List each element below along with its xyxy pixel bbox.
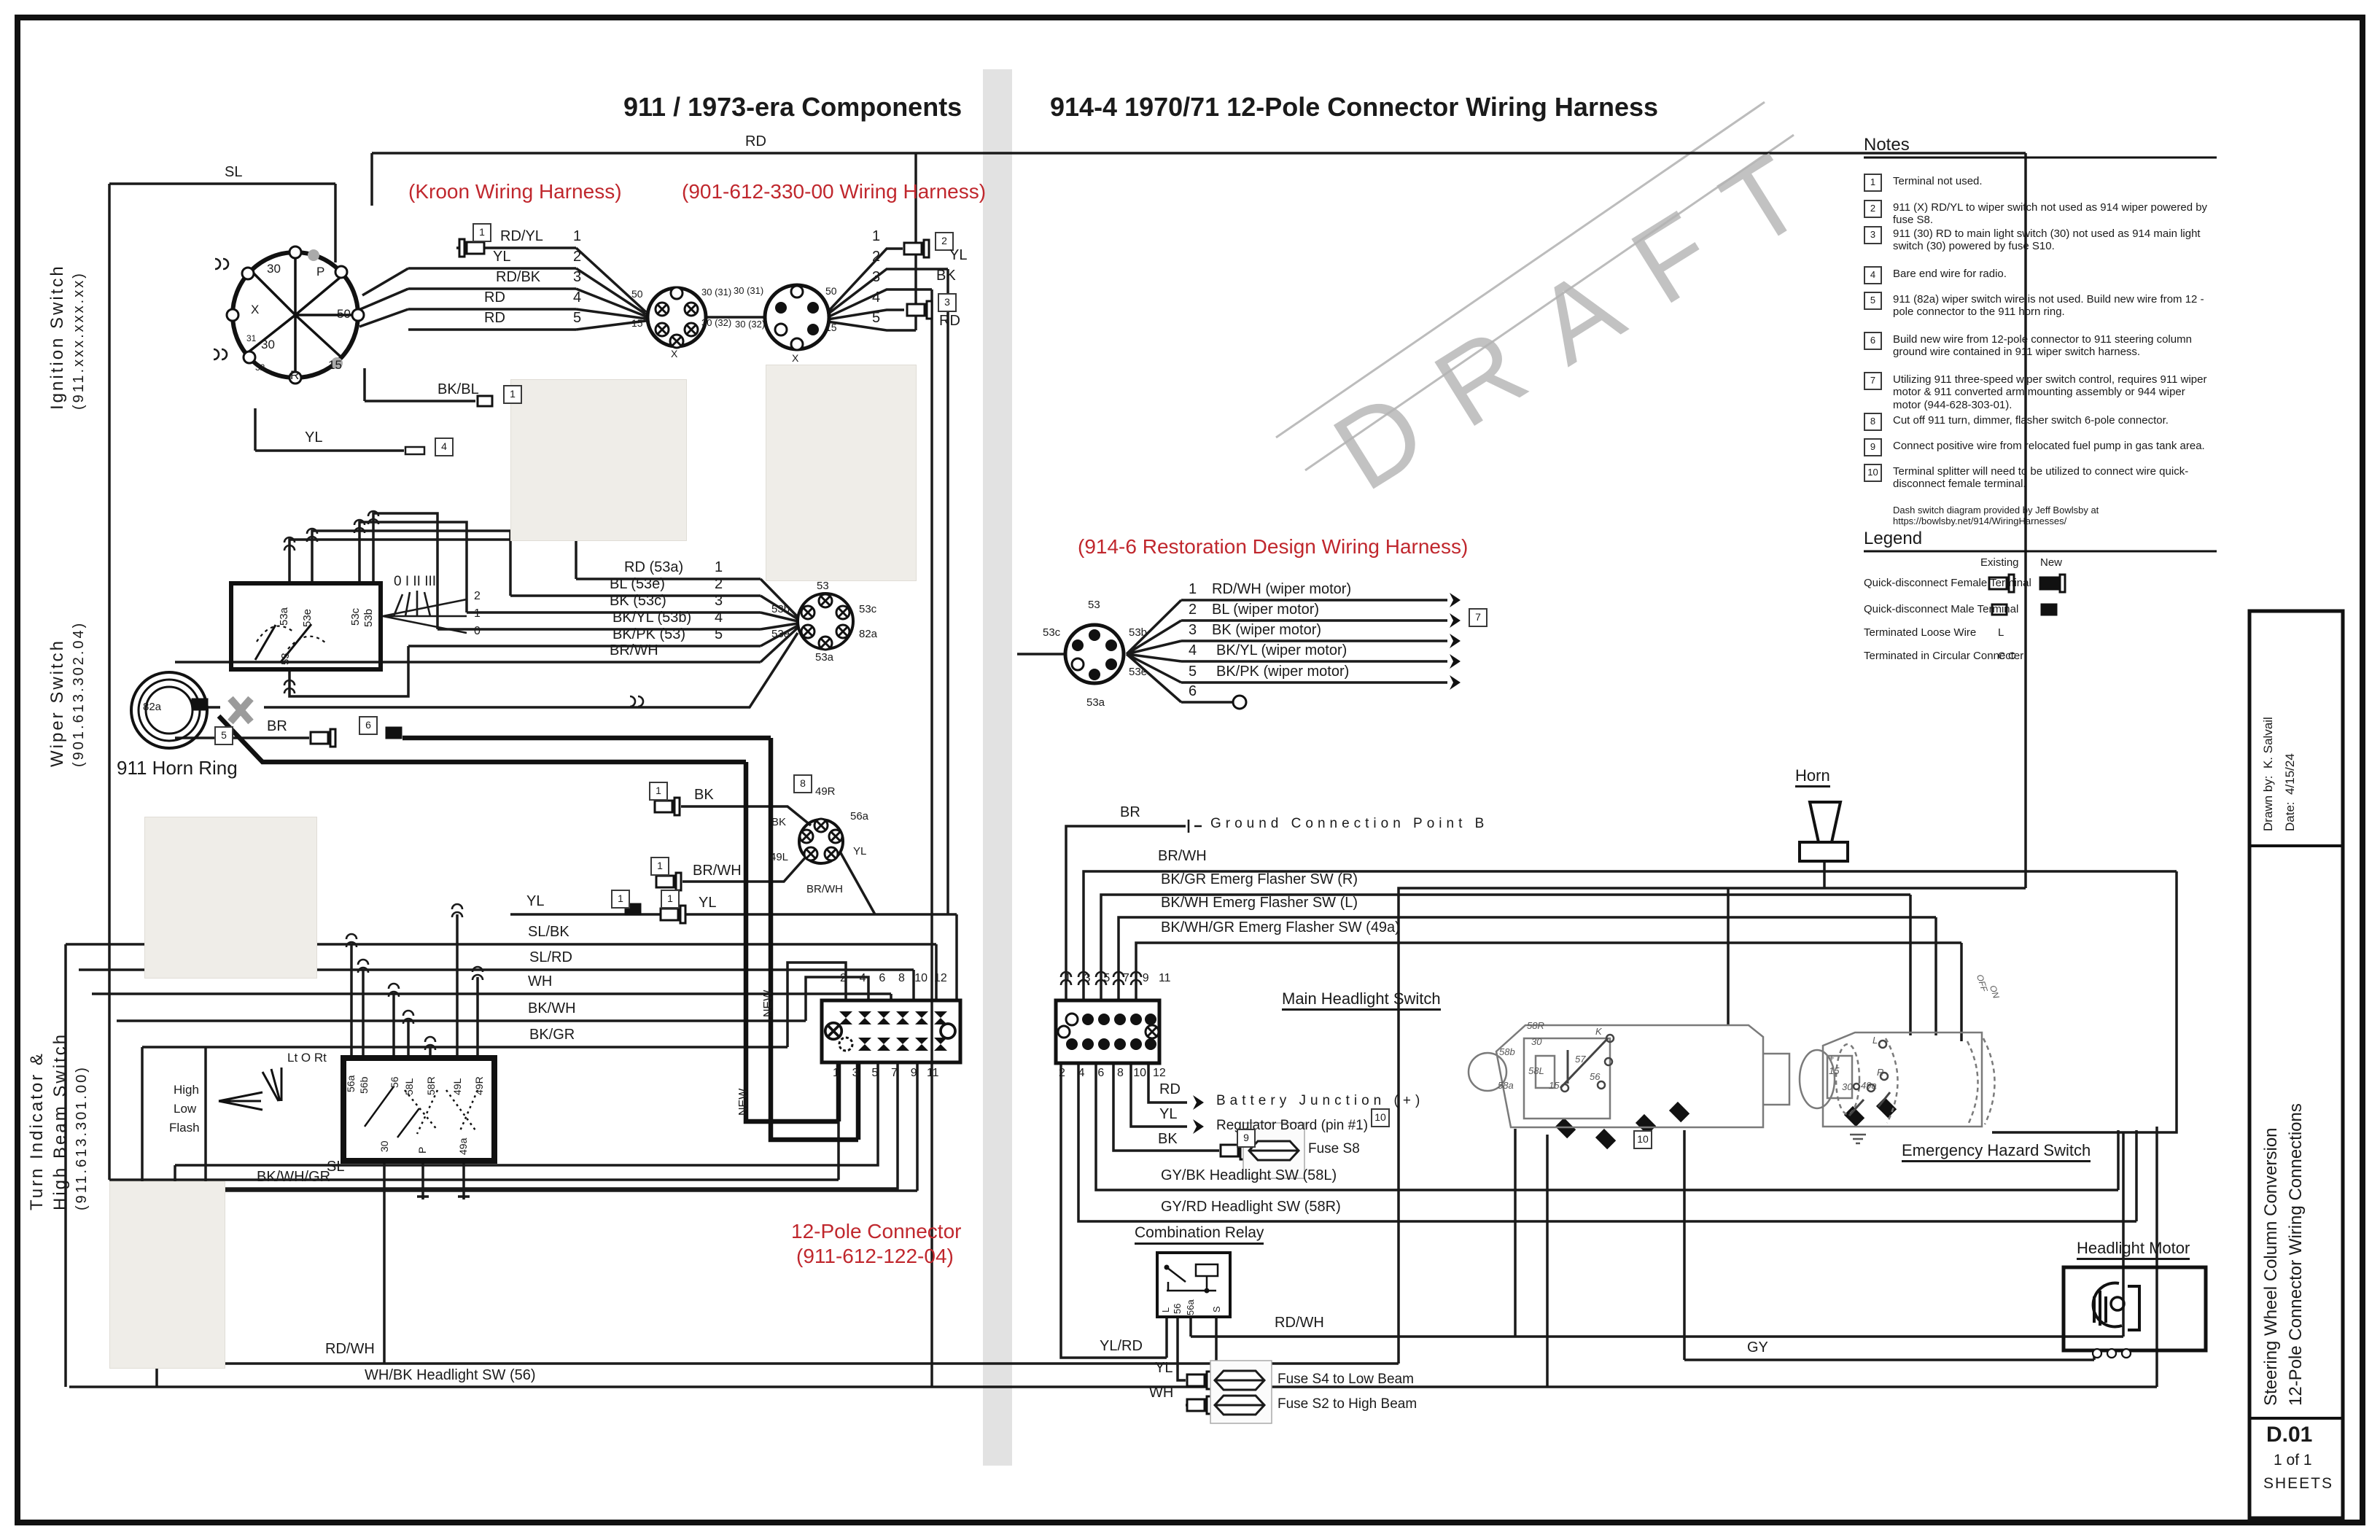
wpin-3: 3 (715, 594, 723, 609)
ignition-section-part: (911.xxx.xxx.xx) (71, 271, 87, 410)
photo-kroon-harness (510, 379, 687, 541)
motor-title: Headlight Motor (2077, 1240, 2190, 1260)
photo-connector-pigtails (766, 365, 917, 581)
six-pin-connector-kroon (798, 594, 853, 650)
bus-wh: WH (528, 974, 552, 989)
conn-b-50: 50 (825, 286, 837, 297)
note-num-6: 6 (1864, 332, 1882, 350)
turn-high: High (174, 1084, 199, 1097)
wiper-53: 53 (280, 653, 292, 665)
wpin-2: 2 (715, 577, 723, 592)
note-num-5: 5 (1864, 292, 1882, 310)
six-pole-turn-connector (799, 819, 843, 863)
r6-53a: 53a (1086, 697, 1105, 709)
bus-bkgr: BK/GR (529, 1027, 575, 1043)
sixpole-49r: 49R (815, 786, 836, 798)
pos-1: 1 (474, 608, 481, 621)
wire-whbk: WH/BK Headlight SW (56) (365, 1368, 536, 1383)
wiring-diagram-page: 911 / 1973-era Components 914-4 1970/71 … (0, 0, 2380, 1540)
wire-br: BR (267, 719, 287, 734)
wiper-53a: 53a (279, 607, 290, 626)
note-ref-7: 7 (1469, 608, 1487, 627)
battery-junction: Battery Junction (+) (1216, 1094, 1424, 1108)
turn-49a: 49a (458, 1138, 469, 1155)
conn-a-15: 15 (631, 318, 643, 329)
horn-title: Horn (1795, 767, 1830, 787)
note-ref-3: 3 (938, 293, 957, 312)
note-ref-10a: 10 (1371, 1108, 1390, 1127)
wm-wire2: BL (wiper motor) (1212, 602, 1319, 618)
wire-yl-right: YL (949, 248, 967, 263)
wire-gybk: GY/BK Headlight SW (58L) (1161, 1168, 1337, 1183)
new-label-1: NEW (738, 1089, 750, 1116)
conn-a-3032: 30 (32) (701, 318, 731, 328)
left-panel-title: 911 / 1973-era Components (623, 93, 962, 121)
sixpole-brwh: BR/WH (806, 884, 843, 895)
turn-section-label-2: High Beam Switch (51, 1032, 69, 1210)
pin-5: 5 (573, 311, 581, 326)
hornring-82a: 82a (143, 701, 161, 713)
wire-wh-s2: WH (1149, 1385, 1173, 1401)
wire-network (66, 153, 2177, 1405)
horn-ring-title: 911 Horn Ring (117, 758, 238, 778)
kroon6-53a: 53a (815, 652, 833, 664)
term-p: P (316, 265, 324, 279)
relay-56a: 56a (1186, 1299, 1196, 1315)
note-ref-6: 6 (359, 716, 378, 735)
wpin-4: 4 (715, 610, 723, 626)
mhs-30: 30 (1531, 1037, 1541, 1047)
kroon6-53e: 53e (771, 629, 790, 640)
fuse-s8: Fuse S8 (1308, 1142, 1360, 1156)
kroon6-53c: 53c (859, 604, 876, 615)
kroon6-82a: 82a (859, 629, 877, 640)
pin-2: 2 (573, 249, 581, 265)
wire-brwh-wiper: BR/WH (610, 643, 658, 658)
wire-bk53c: BK (53c) (610, 594, 666, 609)
note-text-10: Terminal splitter will need to be utiliz… (1893, 465, 2214, 491)
mhs-57: 57 (1575, 1054, 1585, 1065)
turn-56b: 56b (359, 1077, 370, 1094)
note-ref-1b: 1 (503, 385, 522, 404)
note-text-1: Terminal not used. (1893, 175, 2214, 187)
pos-2: 2 (474, 591, 481, 603)
bus-bkwh: BK/WH (528, 1001, 576, 1016)
wire-sl: SL (225, 165, 242, 180)
note-text-3: 911 (30) RD to main light switch (30) no… (1893, 227, 2214, 253)
hz-plus: + (1829, 1053, 1835, 1063)
pin-r2: 2 (872, 249, 880, 265)
bus-yl: YL (526, 894, 544, 909)
note-text-2: 911 (X) RD/YL to wiper switch not used a… (1893, 201, 2214, 227)
tb-title-2: 12-Pole Connector Wiring Connections (2287, 1103, 2305, 1406)
legend-row-1: Quick-disconnect Female Terminal (1864, 577, 2031, 589)
wm-wire3: BK (wiper motor) (1212, 623, 1321, 638)
wire-ylrd: YL/RD (1100, 1339, 1143, 1354)
mhs-58b: 58b (1499, 1047, 1515, 1057)
conn-b-3031: 30 (31) (734, 286, 763, 296)
mhs-58l: 58L (1528, 1066, 1544, 1076)
wire-rdbk: RD/BK (496, 270, 540, 285)
turn-section-part: (911.613.301.00) (74, 1065, 90, 1210)
wm-pin6: 6 (1189, 684, 1197, 699)
pin-r3: 3 (872, 270, 880, 285)
legend-sym-cc: C C (1998, 650, 2015, 661)
panel-divider (983, 69, 1012, 1466)
hz-r: R (1877, 1067, 1883, 1078)
wire-rd-4: RD (484, 290, 505, 306)
note-num-7: 7 (1864, 372, 1882, 390)
legend-row-2: Quick-disconnect Male Terminal (1864, 604, 2018, 615)
note-text-9: Connect positive wire from relocated fue… (1893, 440, 2214, 452)
note-ref-4: 4 (435, 437, 454, 456)
conn-a-x: X (671, 349, 677, 359)
note-ref-5: 5 (214, 726, 233, 745)
wire-bkyl53b: BK/YL (53b) (612, 610, 691, 626)
term-50: 50 (337, 308, 351, 321)
relay-l: L (1161, 1307, 1171, 1312)
wire-bk-trio: BK (694, 787, 714, 803)
wpin-1: 1 (715, 560, 723, 575)
wire-bkgr-ef: BK/GR Emerg Flasher SW (R) (1161, 872, 1358, 887)
note-text-6: Build new wire from 12-pole connector to… (1893, 333, 2214, 359)
legend-existing: Existing (1980, 557, 2019, 569)
r6-53c: 53c (1043, 627, 1060, 639)
wiper-53c: 53c (350, 608, 362, 626)
right-panel-title: 914-4 1970/71 12-Pole Connector Wiring H… (1050, 93, 1658, 121)
ground-point-b: Ground Connection Point B (1210, 817, 1488, 831)
turn-58l: 58L (404, 1078, 415, 1095)
wiper-53b: 53b (363, 609, 375, 627)
wm-pin2: 2 (1189, 602, 1197, 618)
wire-yl-radio: YL (305, 430, 322, 446)
r6-53: 53 (1088, 599, 1100, 611)
note-num-4: 4 (1864, 266, 1882, 284)
mhs-k: K (1595, 1027, 1602, 1037)
quick-disconnects (192, 239, 1895, 1414)
fuse-s2: Fuse S2 to High Beam (1277, 1397, 1417, 1412)
relay-title: Combination Relay (1135, 1225, 1264, 1245)
note-text-7: Utilizing 911 three-speed wiper switch c… (1893, 373, 2214, 411)
pos-0: 0 (474, 626, 481, 638)
term-30: 30 (267, 262, 281, 276)
wire-rd-batt: RD (1159, 1082, 1181, 1097)
r6-53b: 53b (1129, 627, 1147, 639)
tb-date: Date: 4/15/24 (2284, 753, 2297, 831)
note-ref-8: 8 (793, 774, 812, 793)
h914-harness-label: (914-6 Restoration Design Wiring Harness… (1078, 536, 1468, 557)
mhs-title: Main Headlight Switch (1282, 990, 1441, 1011)
wire-brwh-right: BR/WH (1158, 849, 1207, 864)
wire-bl53e: BL (53e) (610, 577, 665, 592)
conn-b-x: X (792, 353, 798, 364)
note-ref-10b: 10 (1633, 1130, 1652, 1149)
twelve-pole-label-2: (911-612-122-04) (796, 1245, 954, 1267)
hz-15: 15 (1829, 1066, 1839, 1076)
mhs-58r: 58R (1527, 1021, 1544, 1031)
hz-30: 30 (1842, 1082, 1852, 1092)
note-ref-1e: 1 (611, 890, 630, 909)
note-num-3: 3 (1864, 226, 1882, 244)
ignition-section-label: Ignition Switch (48, 264, 66, 410)
hz-l: L (1872, 1035, 1878, 1046)
tb-drawn-by: Drawn by: K. Salvail (2262, 717, 2275, 831)
horn-symbol (1800, 802, 1848, 861)
r6-53e: 53e (1129, 666, 1147, 678)
wiper-positions: 0 I II III (394, 575, 436, 589)
pin-4: 4 (573, 290, 581, 306)
relay-56: 56 (1172, 1304, 1183, 1314)
wiper-section-label: Wiper Switch (48, 639, 66, 767)
note-text-8: Cut off 911 turn, dimmer, flasher switch… (1893, 414, 2214, 427)
pin-r4: 4 (872, 290, 880, 306)
wire-rd53a: RD (53a) (624, 560, 683, 575)
term-31: 31 (246, 334, 256, 343)
term-30b: 30 (261, 338, 275, 351)
fuse-s4: Fuse S4 to Low Beam (1277, 1372, 1414, 1387)
wire-bkbl: BK/BL (437, 382, 479, 397)
turn-49r: 49R (474, 1076, 485, 1095)
wm-pin1: 1 (1189, 582, 1197, 597)
kroon6-53: 53 (817, 580, 829, 592)
pin-r1: 1 (872, 229, 880, 244)
lp12-odds: 1 3 5 7 9 11 (833, 1067, 939, 1080)
turn-low: Low (174, 1102, 196, 1116)
wm-pin3: 3 (1189, 623, 1197, 638)
relay-s: S (1212, 1306, 1222, 1312)
note-ref-1f: 1 (661, 890, 680, 909)
term-15: 15 (328, 359, 342, 372)
note-ref-1c: 1 (649, 782, 668, 801)
note-ref-9: 9 (1237, 1129, 1256, 1148)
mhs-58a: 58a (1498, 1081, 1514, 1091)
tb-sheets: SHEETS (2263, 1476, 2333, 1492)
turn-56a: 56a (346, 1076, 357, 1092)
lp12-evens: 2 4 6 8 10 12 (840, 973, 947, 985)
wire-bkwh-ef: BK/WH Emerg Flasher SW (L) (1161, 895, 1358, 911)
rp12-odds: 1 3 5 7 9 11 (1065, 973, 1171, 985)
wire-rd-top: RD (745, 134, 766, 149)
photo-turn-switch-harness (144, 817, 317, 979)
kroon-harness-label: (Kroon Wiring Harness) (408, 181, 622, 202)
hz-49a: 49a (1861, 1081, 1877, 1091)
pin-r5: 5 (872, 311, 880, 326)
turn-p: P (417, 1147, 428, 1154)
turn-section-label-1: Turn Indicator & (28, 1051, 46, 1210)
wire-rd-right: RD (939, 314, 960, 329)
wire-bkwhgr: BK/WH/GR (257, 1170, 330, 1185)
legend-new: New (2040, 557, 2062, 569)
wire-bkpk53: BK/PK (53) (612, 627, 685, 642)
pin-3: 3 (573, 270, 581, 285)
legend-row-3: Terminated Loose Wire (1864, 627, 1976, 639)
mhs-56: 56 (1590, 1072, 1600, 1082)
rp12-evens: 2 4 6 8 10 12 (1059, 1067, 1166, 1080)
turn-56: 56 (389, 1076, 400, 1088)
note-num-9: 9 (1864, 438, 1882, 456)
headlight-motor-symbol (2064, 1267, 2206, 1358)
turn-lt-o-rt: Lt O Rt (287, 1051, 327, 1065)
mhs-15: 15 (1549, 1081, 1559, 1091)
h901-harness-label: (901-612-330-00 Wiring Harness) (682, 181, 986, 202)
new-label-2: NEW (763, 990, 775, 1017)
sixpole-49l: 49L (770, 852, 788, 863)
twelve-pole-left (822, 1000, 960, 1062)
wire-bk-fuse: BK (1158, 1132, 1178, 1147)
legend-sym-l: L (1998, 627, 2004, 639)
sixpole-bk: BK (771, 817, 786, 828)
wm-wire5: BK/PK (wiper motor) (1216, 664, 1349, 680)
kroon6-53b: 53b (771, 604, 790, 615)
wire-bkwhgr-ef: BK/WH/GR Emerg Flasher SW (49a) (1161, 920, 1400, 936)
wpin-5: 5 (715, 627, 723, 642)
term-r: R (290, 369, 299, 382)
wm-pin5: 5 (1189, 664, 1197, 680)
wire-rdyl: RD/YL (500, 229, 543, 244)
wire-rdwh-relay: RD/WH (1275, 1315, 1324, 1331)
bus-slbk: SL/BK (528, 925, 569, 940)
note-ref-1d: 1 (650, 857, 669, 876)
conn-a-50: 50 (631, 289, 643, 300)
note-num-1: 1 (1864, 174, 1882, 192)
conn-a-3031: 30 (31) (701, 287, 731, 297)
wire-bk-right: BK (936, 268, 956, 284)
wire-brwh-trio: BR/WH (693, 863, 742, 879)
wire-yl-2: YL (493, 249, 510, 265)
conn-b-15: 15 (825, 322, 837, 333)
wire-yl-s4: YL (1155, 1361, 1172, 1376)
note-num-8: 8 (1864, 413, 1882, 431)
wiper-section-part: (901.613.302.04) (71, 621, 87, 767)
wire-yl-reg: YL (1159, 1107, 1177, 1122)
photo-column-harness (109, 1181, 225, 1369)
sixpole-yl: YL (853, 846, 866, 857)
tb-page: 1 of 1 (2274, 1452, 2312, 1469)
notes-title: Notes (1864, 136, 1910, 154)
hazard-title: Emergency Hazard Switch (1902, 1142, 2091, 1162)
wm-wire1: RD/WH (wiper motor) (1212, 582, 1351, 597)
tb-sheet-code: D.01 (2266, 1423, 2312, 1447)
pin-1: 1 (573, 229, 581, 244)
notes-credit: Dash switch diagram provided by Jeff Bow… (1893, 505, 2214, 526)
twelve-pole-label-1: 12-Pole Connector (791, 1221, 961, 1242)
wm-pin4: 4 (1189, 643, 1197, 658)
twelve-pole-right (1056, 972, 1159, 1063)
wm-wire4: BK/YL (wiper motor) (1216, 643, 1347, 658)
bus-slrd: SL/RD (529, 950, 572, 965)
sixpole-56a: 56a (850, 811, 868, 822)
turn-49l: 49L (452, 1078, 463, 1095)
conn-b-3032: 30 (32) (735, 319, 765, 330)
note-ref-1: 1 (472, 223, 491, 242)
wire-br-right: BR (1120, 805, 1140, 820)
note-num-2: 2 (1864, 200, 1882, 218)
wiper-53e: 53e (302, 609, 314, 627)
note-text-4: Bare end wire for radio. (1893, 268, 2214, 280)
note-num-10: 10 (1864, 464, 1882, 482)
term-x: X (251, 303, 259, 316)
wire-yl-trio: YL (699, 895, 716, 911)
six-pin-connector-914 (1065, 625, 1124, 683)
tb-title-1: Steering Wheel Column Conversion (2262, 1127, 2280, 1406)
turn-58r: 58R (426, 1076, 437, 1095)
wire-gy: GY (1747, 1340, 1768, 1356)
term-32: 32 (255, 363, 265, 373)
wire-rdwh-bottom: RD/WH (325, 1342, 375, 1357)
turn-30: 30 (379, 1140, 390, 1152)
wire-gyrd: GY/RD Headlight SW (58R) (1161, 1199, 1341, 1215)
note-text-5: 911 (82a) wiper switch wire is not used.… (1893, 293, 2214, 319)
wire-rd-5: RD (484, 311, 505, 326)
legend-title: Legend (1864, 529, 1922, 548)
turn-flash: Flash (169, 1121, 200, 1135)
